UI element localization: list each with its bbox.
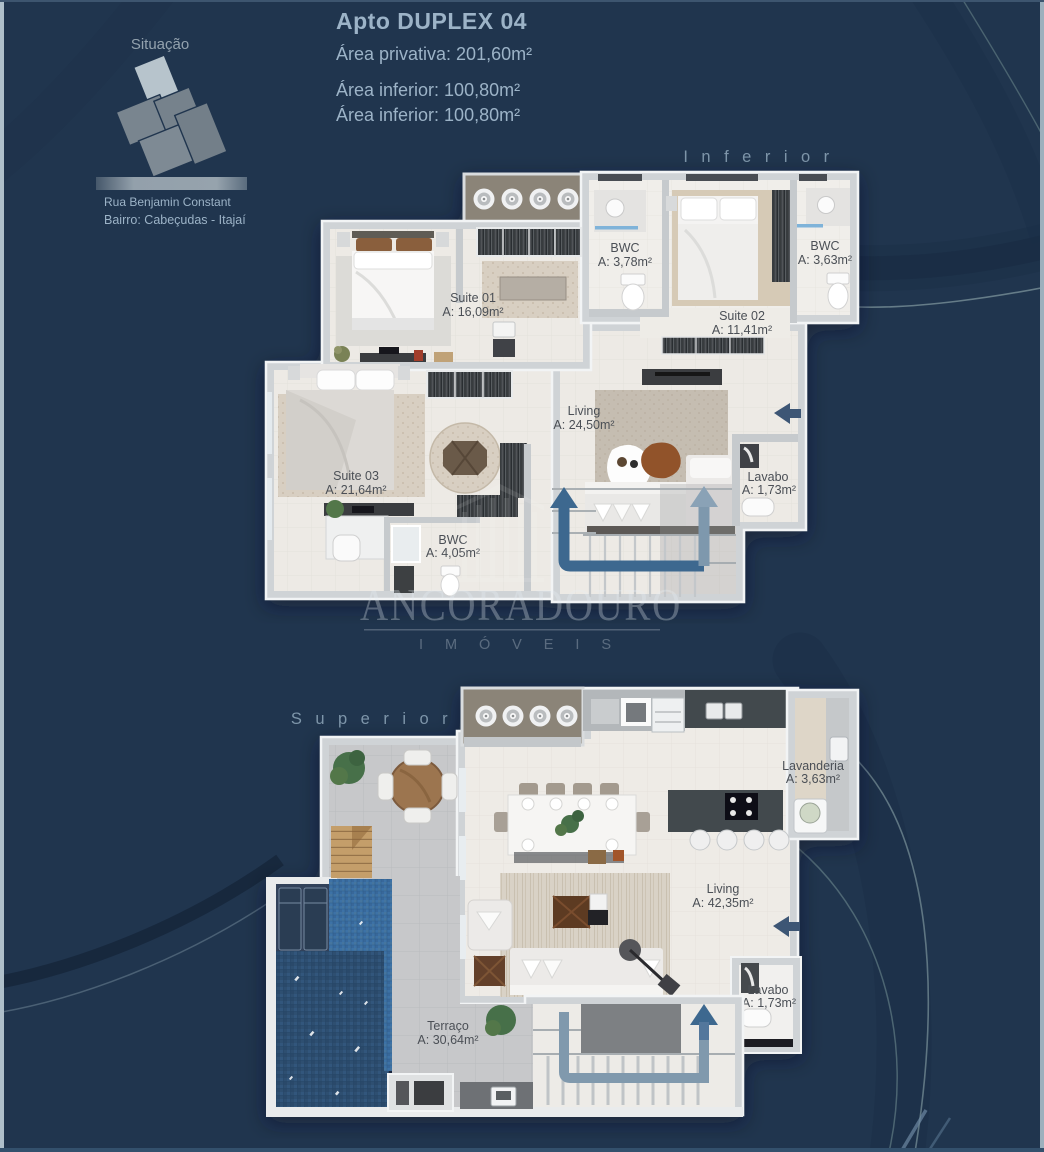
svg-text:BWC: BWC — [610, 241, 639, 255]
svg-text:A: 30,64m²: A: 30,64m² — [417, 1033, 478, 1047]
svg-text:Lavabo: Lavabo — [747, 470, 788, 484]
svg-text:A: 21,64m²: A: 21,64m² — [325, 483, 386, 497]
svg-text:A: 3,78m²: A: 3,78m² — [598, 255, 652, 269]
svg-text:A: 1,73m²: A: 1,73m² — [742, 483, 796, 497]
svg-text:Living: Living — [707, 882, 740, 896]
svg-text:Living: Living — [568, 404, 601, 418]
svg-text:A: 3,63m²: A: 3,63m² — [786, 772, 840, 786]
svg-text:A: 24,50m²: A: 24,50m² — [553, 418, 614, 432]
svg-text:Inferior: Inferior — [683, 148, 842, 166]
svg-text:Apto DUPLEX 04: Apto DUPLEX 04 — [336, 8, 527, 34]
svg-text:Lavanderia: Lavanderia — [782, 759, 844, 773]
svg-text:A: 16,09m²: A: 16,09m² — [442, 305, 503, 319]
svg-text:Situação: Situação — [131, 36, 189, 53]
svg-text:Superior: Superior — [291, 710, 461, 728]
svg-text:A: 3,63m²: A: 3,63m² — [798, 253, 852, 267]
svg-text:Suite 03: Suite 03 — [333, 469, 379, 483]
svg-text:Bairro: Cabeçudas - Itajaí: Bairro: Cabeçudas - Itajaí — [104, 213, 246, 227]
svg-text:Área inferior: 100,80m²: Área inferior: 100,80m² — [336, 105, 520, 125]
svg-text:Lavabo: Lavabo — [747, 983, 788, 997]
svg-text:Área inferior: 100,80m²: Área inferior: 100,80m² — [336, 80, 520, 100]
svg-text:Rua Benjamin Constant: Rua Benjamin Constant — [104, 195, 231, 209]
svg-text:A: 1,73m²: A: 1,73m² — [742, 996, 796, 1010]
svg-text:Suite 02: Suite 02 — [719, 309, 765, 323]
svg-text:BWC: BWC — [810, 239, 839, 253]
svg-text:ANCORADOURO: ANCORADOURO — [360, 579, 682, 630]
svg-text:Terraço: Terraço — [427, 1019, 469, 1033]
svg-text:Suite 01: Suite 01 — [450, 291, 496, 305]
svg-text:A: 11,41m²: A: 11,41m² — [712, 323, 772, 337]
svg-text:A: 42,35m²: A: 42,35m² — [692, 896, 753, 910]
svg-text:A: 4,05m²: A: 4,05m² — [426, 546, 480, 560]
svg-text:Área privativa: 201,60m²: Área privativa: 201,60m² — [336, 44, 532, 64]
